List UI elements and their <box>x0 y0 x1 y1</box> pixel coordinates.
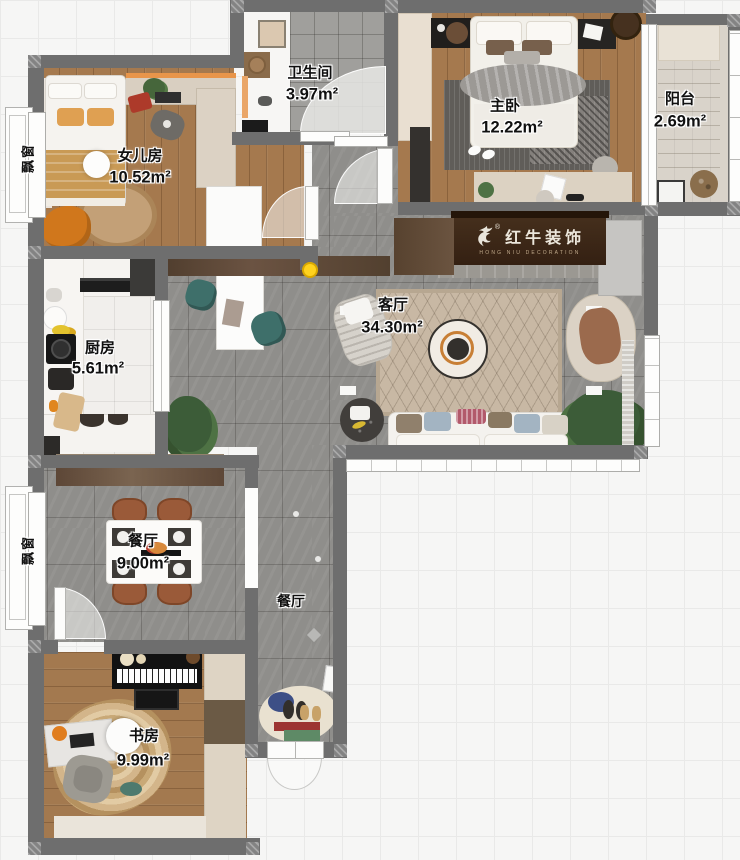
tv-cabinet-left <box>394 218 454 275</box>
ceiling-lamp <box>83 151 110 178</box>
washing-machine <box>258 20 286 48</box>
floor-dot <box>315 556 321 562</box>
sofa-pillow <box>488 412 512 428</box>
food-item <box>49 400 58 412</box>
plate <box>173 563 185 575</box>
kitchen-cabinet-dark <box>130 258 157 296</box>
laptop <box>69 733 94 748</box>
nightstand-dot <box>437 24 445 32</box>
tray <box>350 406 370 420</box>
sofa-pillow <box>424 412 451 431</box>
area-label-dining: 9.00m² <box>117 555 169 574</box>
burner <box>51 339 71 359</box>
blanket-roll <box>460 64 586 106</box>
wall-corner <box>246 842 259 855</box>
sliding-door-kitchen <box>153 300 170 412</box>
plate <box>173 531 185 543</box>
wall-corner <box>28 246 41 259</box>
wardrobe-dark-panel <box>410 127 430 213</box>
wall-segment <box>333 445 648 459</box>
room-label-girls: 女儿房 <box>117 145 162 166</box>
dresser-nook <box>206 186 262 247</box>
wall-corner <box>727 202 740 215</box>
area-label-girls: 10.52m² <box>109 169 170 188</box>
room-label-study: 书房 <box>129 725 159 746</box>
sign-lip <box>451 211 609 218</box>
piano-keys <box>117 669 197 683</box>
desk-orange-item <box>52 726 67 741</box>
desk-edge <box>126 73 236 78</box>
brand-subtitle: HONG NIU DECORATION <box>479 250 580 256</box>
pillow <box>504 51 540 64</box>
wall-corner <box>334 744 347 757</box>
sofa-pillow <box>456 409 486 424</box>
hall-wardrobe <box>160 256 390 276</box>
room-label-bathroom: 卫生间 <box>287 62 332 83</box>
door-master-bedroom <box>377 148 393 204</box>
pot <box>46 288 62 302</box>
yellow-marker <box>302 262 318 278</box>
wall-segment <box>230 0 400 12</box>
wall-segment <box>644 215 658 337</box>
pillow <box>84 83 117 99</box>
brand-name: 红牛装饰 <box>505 224 585 248</box>
wall-segment <box>28 455 259 468</box>
wall-segment <box>104 640 258 654</box>
wall-corner <box>634 446 647 459</box>
wall-segment <box>384 0 398 146</box>
room-label-corridor: 餐厅 <box>277 591 305 611</box>
floor-plan: ® 红牛装饰 HONG NIU DECORATION <box>0 0 740 860</box>
brand-sign: ® 红牛装饰 HONG NIU DECORATION <box>454 214 606 265</box>
ceiling-mark <box>340 386 356 395</box>
wall-segment <box>390 0 656 13</box>
window-living-east <box>644 335 660 447</box>
bay-window-label: 飘窗 <box>18 535 37 565</box>
sofa-pillow <box>396 414 422 433</box>
wall-segment <box>28 640 44 840</box>
wall-segment <box>333 445 347 758</box>
bull-logo-icon <box>475 225 494 247</box>
room-label-balcony: 阳台 <box>665 88 695 109</box>
footprint <box>283 700 294 719</box>
wall-corner <box>28 640 41 653</box>
area-label-master: 12.22m² <box>481 119 542 138</box>
registered-mark: ® <box>495 224 500 231</box>
basket <box>248 56 266 74</box>
rug-accent <box>120 782 142 796</box>
range-hood <box>80 278 130 292</box>
wall-segment <box>645 202 740 216</box>
coffee-table-top <box>447 338 469 360</box>
wall-corner <box>28 455 41 468</box>
pillow <box>48 83 82 99</box>
door-girls-room <box>305 186 319 240</box>
entry-door-right <box>295 741 324 759</box>
bowl <box>80 414 104 427</box>
window-balcony <box>729 30 740 202</box>
wall-corner <box>333 445 346 458</box>
sheer-curtain <box>622 340 634 446</box>
shower-door <box>334 136 388 147</box>
window-living-south <box>346 459 640 472</box>
plant-master <box>478 182 494 198</box>
piano-bench <box>134 689 179 710</box>
plant-balcony <box>690 170 718 198</box>
area-label-bathroom: 3.97m² <box>286 86 338 105</box>
wall-corner <box>28 842 41 855</box>
sink <box>48 368 74 390</box>
wall-segment <box>245 652 258 744</box>
toilet <box>258 96 272 106</box>
sofa-pillow <box>542 415 568 435</box>
pillow <box>57 108 84 126</box>
chair-dot <box>163 120 171 128</box>
wall-corner <box>231 0 244 13</box>
wall-opening-dining <box>245 488 258 588</box>
piano-item <box>136 654 146 664</box>
wall-segment <box>646 14 740 25</box>
room-label-kitchen: 厨房 <box>85 337 115 358</box>
wall-corner <box>727 14 740 27</box>
wall-corner <box>245 744 258 757</box>
room-label-master: 主卧 <box>490 95 520 116</box>
floor-dot <box>293 511 299 517</box>
monitor <box>155 92 181 103</box>
wall-corner <box>643 0 656 13</box>
wardrobe-girls <box>196 88 236 188</box>
area-label-kitchen: 5.61m² <box>72 360 124 379</box>
doormat-figure <box>300 705 309 720</box>
room-label-living: 客厅 <box>378 294 408 315</box>
area-label-study: 9.99m² <box>117 752 169 771</box>
nightstand-rug <box>446 22 468 44</box>
wall-segment <box>28 838 260 855</box>
plant-hall <box>166 396 212 452</box>
door-dining <box>54 587 66 640</box>
wall-corner <box>385 0 398 13</box>
balcony-cabinet <box>658 25 720 61</box>
entry-door-left <box>267 741 297 759</box>
study-closet-dark <box>204 700 246 744</box>
piano-item <box>120 652 134 666</box>
wardrobe-master <box>398 13 432 141</box>
area-label-balcony: 2.69m² <box>654 113 706 132</box>
wall-corner <box>28 55 41 68</box>
wall-segment <box>28 246 314 259</box>
doormat-figure <box>312 706 321 721</box>
beanbag <box>42 206 91 250</box>
window-sill-study <box>54 816 206 838</box>
entry-door-swing <box>267 757 322 790</box>
bed-fold <box>46 198 125 206</box>
vanity-edge <box>242 76 248 118</box>
wall-segment <box>28 259 44 455</box>
area-label-living: 34.30m² <box>361 319 422 338</box>
room-label-dining: 餐厅 <box>128 530 158 551</box>
bowl <box>108 414 128 425</box>
wall-segment <box>28 55 244 68</box>
ceiling-mark <box>586 386 602 395</box>
desk-items <box>566 194 584 201</box>
sofa-pillow <box>514 414 540 433</box>
bay-window-label: 飘窗 <box>18 143 37 173</box>
pillow <box>87 108 114 126</box>
